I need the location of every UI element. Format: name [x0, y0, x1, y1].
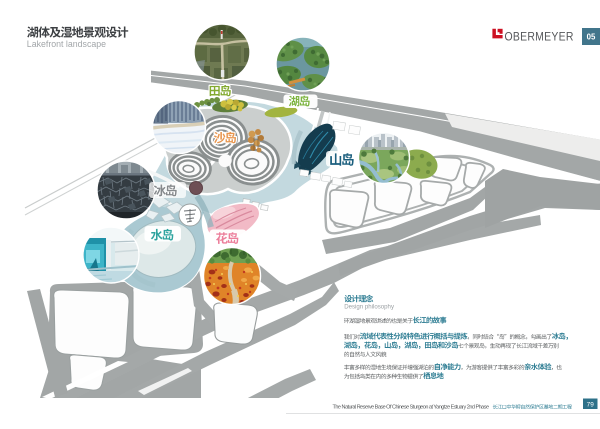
svg-text:OBERMEYER: OBERMEYER: [505, 31, 574, 44]
svg-text:The Natural Reserve Base Of Ch: The Natural Reserve Base Of Chinese Stur…: [333, 405, 490, 411]
svg-text:Lakefront landscape: Lakefront landscape: [27, 39, 106, 49]
svg-text:79: 79: [587, 401, 595, 408]
svg-text:05: 05: [587, 32, 596, 41]
svg-text:Design philosophy: Design philosophy: [344, 303, 395, 310]
